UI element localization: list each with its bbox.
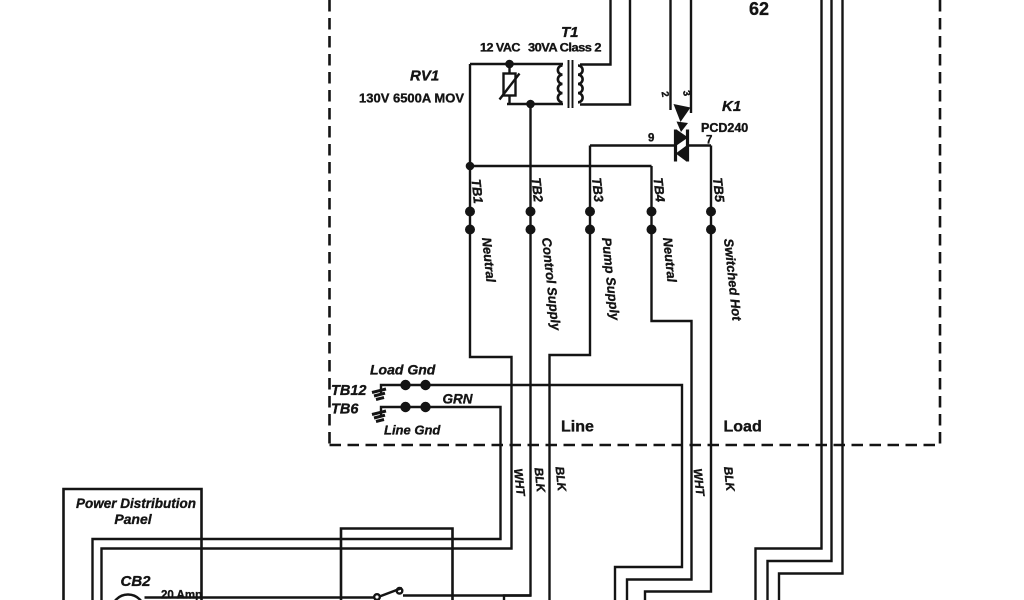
svg-text:TB3: TB3 [589,177,607,204]
svg-text:BLK: BLK [721,466,738,493]
svg-text:62: 62 [749,0,769,19]
svg-text:TB6: TB6 [331,402,359,418]
svg-text:WHT: WHT [511,468,528,498]
svg-text:GRN: GRN [443,392,473,407]
svg-text:TB2: TB2 [529,177,547,204]
svg-text:T1: T1 [561,24,579,41]
svg-text:TB4: TB4 [651,177,669,204]
svg-text:Control Supply: Control Supply [539,237,564,332]
svg-text:9: 9 [648,133,654,145]
svg-text:2: 2 [659,91,671,99]
svg-text:TB5: TB5 [710,177,728,204]
svg-text:K1: K1 [722,98,741,115]
svg-text:RV1: RV1 [410,68,439,85]
svg-text:Neutral: Neutral [660,237,680,283]
svg-text:WHT: WHT [691,468,708,498]
svg-text:Load: Load [724,419,762,436]
svg-text:TB1: TB1 [469,178,486,204]
svg-text:7: 7 [706,135,712,147]
svg-text:Power Distribution: Power Distribution [76,496,196,511]
svg-text:Load Gnd: Load Gnd [370,362,436,378]
svg-text:BLK: BLK [532,467,549,494]
svg-text:Neutral: Neutral [479,237,499,283]
svg-text:CB2: CB2 [121,573,152,590]
svg-text:Pump Supply: Pump Supply [599,237,623,322]
svg-text:130V 6500A MOV: 130V 6500A MOV [359,91,464,106]
svg-text:12 VAC30VA Class 2: 12 VAC30VA Class 2 [480,41,602,55]
svg-text:Panel: Panel [114,511,152,527]
svg-text:Switched Hot: Switched Hot [721,238,745,322]
svg-text:20 Amp: 20 Amp [161,590,202,600]
svg-text:PCD240: PCD240 [701,121,748,135]
svg-text:TB12: TB12 [331,383,366,399]
svg-text:BLK: BLK [553,466,570,493]
svg-text:Line: Line [561,419,594,436]
svg-text:Line Gnd: Line Gnd [384,423,441,438]
